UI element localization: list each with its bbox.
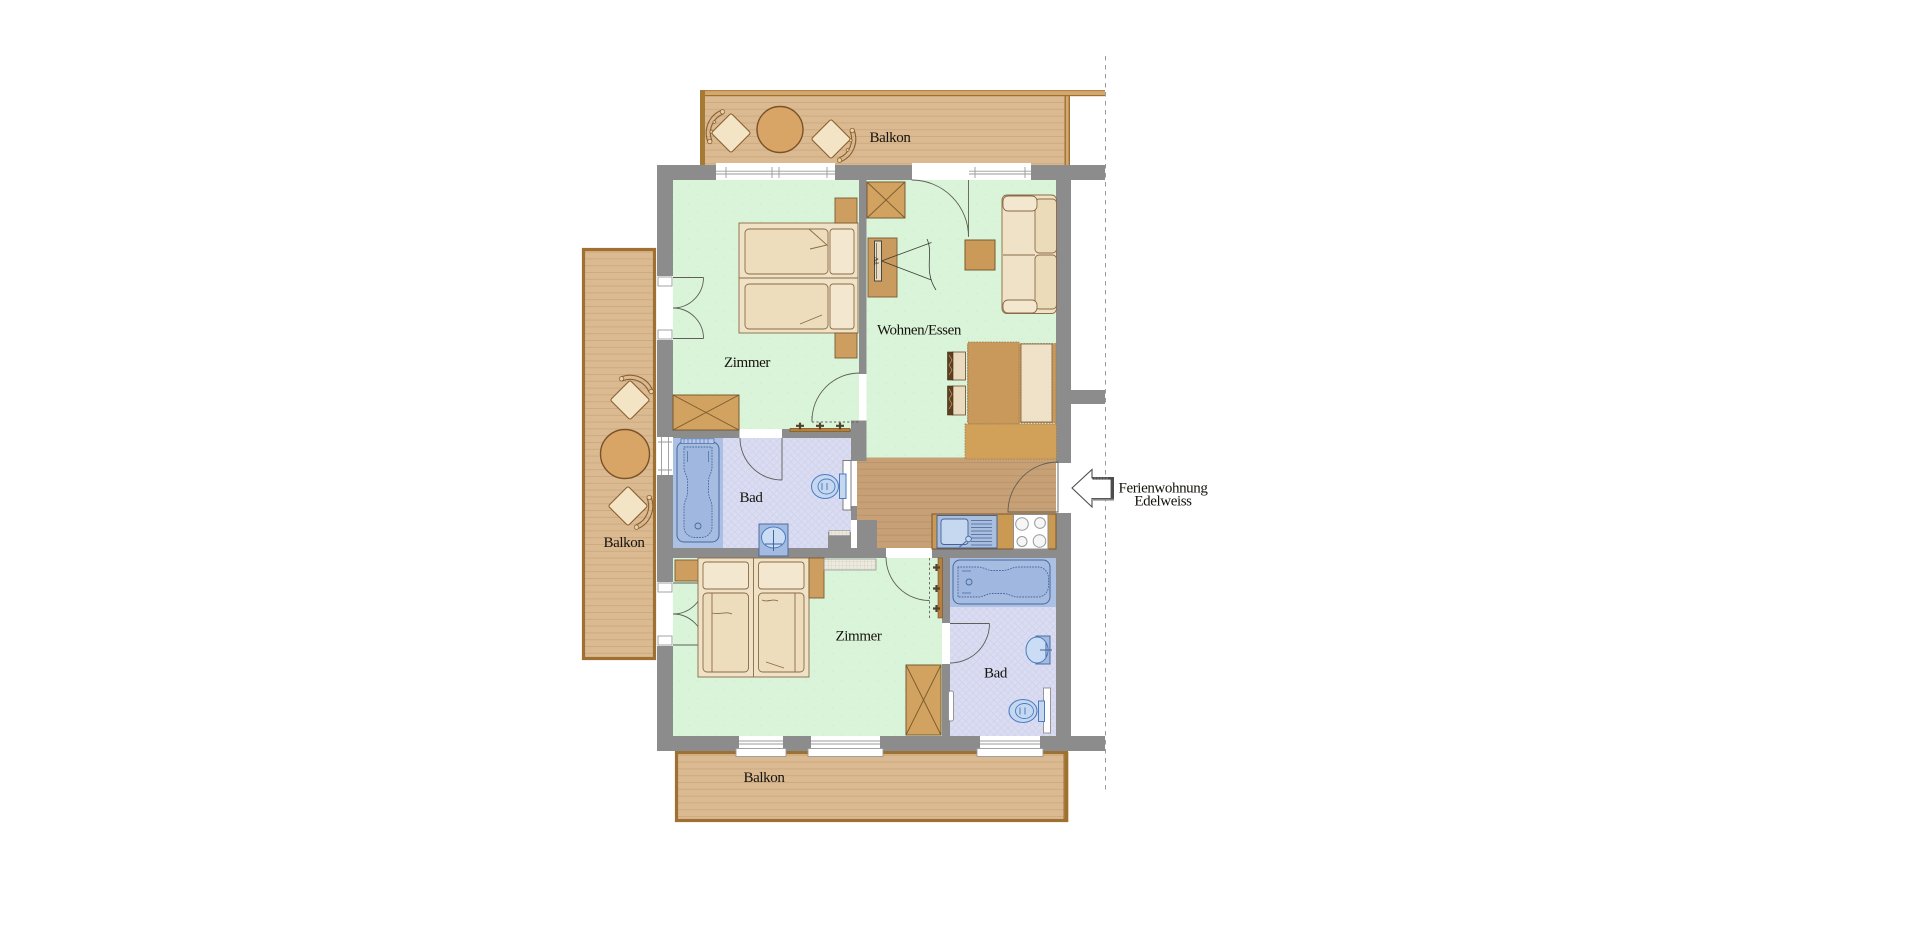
svg-text:Balkon: Balkon — [744, 770, 786, 786]
svg-text:Zimmer: Zimmer — [836, 629, 882, 645]
svg-text:Bad: Bad — [740, 490, 764, 506]
svg-text:Wohnen/Essen: Wohnen/Essen — [877, 323, 962, 339]
svg-text:Zimmer: Zimmer — [724, 355, 770, 371]
svg-text:Bad: Bad — [984, 666, 1008, 682]
svg-text:Balkon: Balkon — [604, 535, 646, 551]
svg-text:TV: TV — [874, 256, 881, 265]
svg-text:Balkon: Balkon — [870, 130, 912, 146]
svg-text:Edelweiss: Edelweiss — [1134, 494, 1192, 510]
